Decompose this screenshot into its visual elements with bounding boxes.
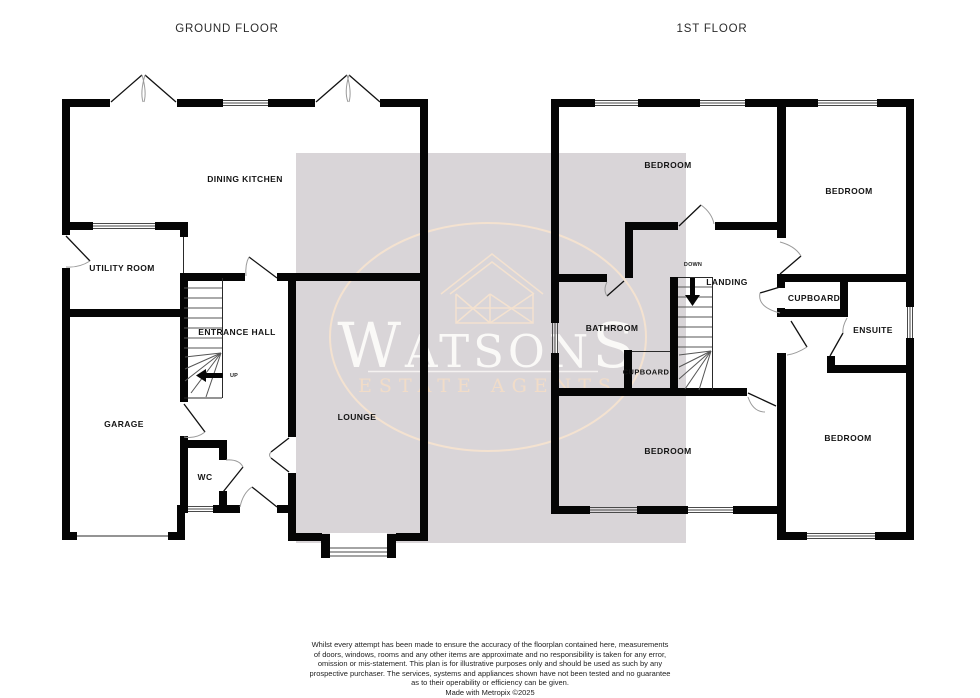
bedroom-door — [780, 242, 801, 274]
ensuite-door — [830, 318, 847, 356]
front-door — [240, 487, 277, 507]
window — [595, 101, 638, 106]
utility-external-door — [66, 236, 90, 267]
window — [700, 101, 745, 106]
kitchen-door — [246, 257, 277, 278]
wc-door — [223, 460, 243, 492]
window — [93, 224, 155, 229]
patio-doors — [111, 75, 176, 102]
cupboard-door — [760, 287, 780, 313]
ground-floor-stairs — [184, 278, 223, 398]
down-arrow — [685, 278, 700, 306]
floorplan-drawing: WATSONS ESTATE AGENTS — [0, 0, 980, 698]
garage-internal-door — [184, 404, 205, 437]
up-arrow — [196, 369, 223, 382]
window — [908, 307, 913, 338]
watermark: WATSONS ESTATE AGENTS — [296, 153, 686, 543]
window — [188, 507, 213, 512]
window — [223, 101, 268, 106]
bay-window — [321, 533, 396, 558]
patio-doors — [316, 75, 380, 102]
watermark-brand-mid: ATSON — [404, 325, 592, 378]
lounge-double-doors — [270, 438, 290, 472]
bedroom-door — [748, 393, 776, 412]
window — [688, 508, 733, 513]
window — [807, 534, 875, 539]
bedroom-door — [787, 321, 807, 355]
floorplan-page: WATSONS ESTATE AGENTS — [0, 0, 980, 698]
window — [818, 101, 877, 106]
